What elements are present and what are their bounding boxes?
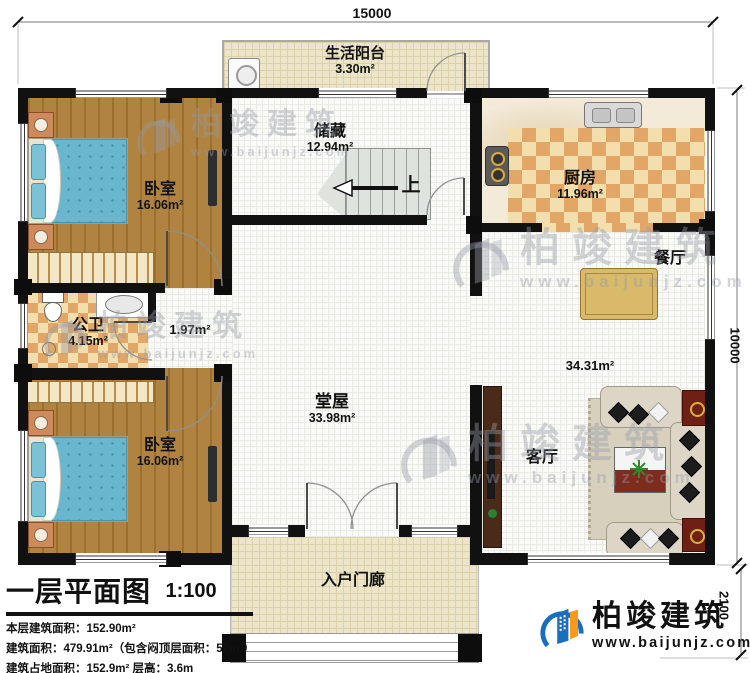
room-area: 4.15m² bbox=[56, 335, 120, 349]
column bbox=[14, 364, 32, 382]
stat-floor-area: 本层建筑面积：152.90m² bbox=[6, 620, 255, 636]
room-name: 入户门廊 bbox=[298, 572, 408, 590]
shower-head bbox=[42, 342, 56, 356]
sofa-pillow bbox=[608, 402, 629, 423]
bed-bottom bbox=[28, 436, 128, 522]
sofa-pillow bbox=[648, 402, 669, 423]
column bbox=[699, 219, 715, 234]
room-name: 储藏 bbox=[288, 123, 372, 141]
pillow bbox=[31, 442, 46, 478]
column bbox=[216, 88, 232, 103]
bathroom-sink-basin bbox=[105, 295, 143, 314]
window bbox=[318, 88, 397, 98]
wall bbox=[470, 385, 482, 565]
pillow bbox=[31, 144, 46, 180]
wall bbox=[222, 88, 232, 288]
room-area: 3.30m² bbox=[300, 63, 410, 77]
bedroom-bottom-label: 卧室 16.06m² bbox=[116, 437, 204, 468]
nightstand bbox=[28, 522, 54, 548]
wardrobe-bottom bbox=[25, 381, 154, 403]
window bbox=[75, 553, 167, 565]
hall-label: 堂屋 33.98m² bbox=[291, 393, 373, 425]
window bbox=[527, 553, 670, 565]
table-inlay bbox=[585, 273, 653, 315]
wall bbox=[668, 553, 715, 565]
wall bbox=[18, 347, 28, 430]
wardrobe-top bbox=[25, 252, 154, 284]
window bbox=[411, 525, 458, 537]
window bbox=[18, 303, 28, 349]
wall bbox=[148, 293, 156, 322]
window bbox=[705, 130, 715, 212]
window bbox=[18, 430, 28, 522]
up-text: 上 bbox=[401, 175, 420, 196]
living-area-label: 34.31m² bbox=[556, 359, 624, 373]
sofa-pillow bbox=[628, 404, 649, 425]
room-name: 生活阳台 bbox=[300, 46, 410, 63]
stat-total-area: 建筑面积：479.91m²（包含闷顶层面积：57m²） bbox=[6, 640, 255, 656]
sink-basin bbox=[616, 108, 635, 123]
room-name: 卧室 bbox=[116, 437, 204, 455]
wall bbox=[287, 525, 305, 537]
room-area: 16.06m² bbox=[116, 199, 204, 213]
wall bbox=[705, 88, 715, 130]
sofa-pillow bbox=[658, 528, 679, 549]
room-area: 33.98m² bbox=[291, 412, 373, 426]
room-name: 卧室 bbox=[116, 181, 204, 199]
porch-label: 入户门廊 bbox=[298, 572, 408, 590]
window bbox=[548, 88, 649, 98]
burner bbox=[491, 152, 505, 166]
balcony-label: 生活阳台 3.30m² bbox=[300, 46, 410, 76]
nightstand bbox=[28, 224, 54, 250]
wall bbox=[18, 553, 75, 565]
dim-top-width: 15000 bbox=[337, 5, 407, 21]
sofa-bottom bbox=[606, 522, 684, 557]
corridor-area-label: 1.97m² bbox=[158, 323, 222, 337]
nightstand bbox=[28, 112, 54, 138]
room-name: 公卫 bbox=[56, 317, 120, 335]
column bbox=[214, 364, 232, 382]
living-label: 客厅 bbox=[516, 449, 568, 467]
kitchen-doorway-floor bbox=[542, 223, 653, 232]
wall bbox=[232, 215, 427, 225]
tv-bedroom-bottom bbox=[208, 446, 217, 502]
storage-label: 储藏 12.94m² bbox=[288, 123, 372, 154]
bathroom-label: 公卫 4.15m² bbox=[56, 317, 120, 348]
sofa-pillow bbox=[679, 482, 700, 503]
sofa-top bbox=[600, 386, 682, 428]
sofa-right bbox=[670, 422, 709, 520]
kitchen-label: 厨房 11.96m² bbox=[540, 170, 620, 201]
wall bbox=[18, 368, 165, 380]
room-name: 客厅 bbox=[516, 449, 568, 467]
room-name: 厨房 bbox=[540, 170, 620, 188]
wall bbox=[222, 525, 248, 537]
wall bbox=[395, 88, 427, 98]
brand-name: 柏竣建筑 bbox=[592, 602, 750, 632]
stove bbox=[485, 146, 509, 186]
bedroom-top-label: 卧室 16.06m² bbox=[116, 181, 204, 212]
column bbox=[464, 88, 482, 103]
washing-machine bbox=[228, 58, 260, 90]
column bbox=[466, 216, 482, 234]
column bbox=[14, 279, 32, 295]
porch-column bbox=[458, 634, 482, 662]
room-area: 1.97m² bbox=[158, 323, 222, 337]
tv-cabinet bbox=[483, 386, 502, 548]
tv-screen bbox=[487, 431, 495, 499]
bed-top bbox=[28, 138, 128, 224]
wall bbox=[705, 338, 715, 565]
wall bbox=[480, 553, 527, 565]
wall bbox=[399, 525, 411, 537]
wall bbox=[18, 283, 165, 293]
wall bbox=[470, 88, 482, 232]
drawing-scale: 1:100 bbox=[165, 580, 216, 603]
window bbox=[18, 123, 28, 222]
sofa-pillow bbox=[681, 456, 702, 477]
brand-website: www.baijunjz.com bbox=[592, 635, 750, 651]
porch-steps bbox=[230, 633, 479, 663]
sofa-pillow bbox=[679, 430, 700, 451]
stairs-up-label: 上 bbox=[398, 176, 424, 197]
brand-logo-icon bbox=[538, 602, 586, 654]
burner bbox=[491, 168, 505, 182]
brand-logo: 柏竣建筑 www.baijunjz.com bbox=[538, 602, 750, 654]
room-area: 12.94m² bbox=[288, 141, 372, 155]
pillow bbox=[31, 481, 46, 517]
sink-basin bbox=[592, 108, 611, 123]
kitchen-sink bbox=[584, 102, 642, 128]
window bbox=[75, 88, 167, 98]
tv-bedroom-top bbox=[208, 150, 217, 206]
wall bbox=[470, 232, 482, 296]
brand-text: 柏竣建筑 www.baijunjz.com bbox=[592, 602, 750, 651]
dining-label: 餐厅 bbox=[646, 250, 694, 268]
title-block: 一层平面图 1:100 本层建筑面积：152.90m² 建筑面积：479.91m… bbox=[6, 570, 255, 673]
page-title: 一层平面图 bbox=[6, 570, 151, 610]
washing-machine-drum bbox=[236, 65, 257, 86]
room-name: 堂屋 bbox=[291, 393, 373, 412]
coffee-table bbox=[614, 447, 666, 493]
stat-footprint: 建筑占地面积：152.9m² 层高：3.6m bbox=[6, 660, 255, 673]
sofa-pillow bbox=[620, 528, 641, 549]
wall bbox=[456, 525, 482, 537]
wall bbox=[18, 88, 28, 123]
wall bbox=[482, 223, 542, 232]
room-area: 11.96m² bbox=[540, 188, 620, 202]
nightstand bbox=[28, 410, 54, 436]
window bbox=[705, 255, 715, 340]
room-name: 餐厅 bbox=[646, 250, 694, 268]
pillow bbox=[31, 183, 46, 219]
dim-right-height: 10000 bbox=[728, 316, 743, 376]
bathroom-sink-counter bbox=[96, 290, 150, 318]
title-underline bbox=[6, 612, 253, 616]
wall bbox=[165, 88, 318, 98]
table-ornament bbox=[690, 529, 705, 544]
room-area: 16.06m² bbox=[116, 455, 204, 469]
column bbox=[214, 279, 232, 295]
dining-table bbox=[580, 268, 658, 320]
floor-plan: 生活阳台 3.30m² 储藏 12.94m² 上 厨房 11.96m² 卧室 1… bbox=[0, 0, 750, 673]
table-ornament bbox=[690, 402, 705, 417]
plant-small bbox=[488, 509, 497, 518]
window bbox=[248, 525, 289, 537]
room-area: 34.31m² bbox=[556, 359, 624, 373]
